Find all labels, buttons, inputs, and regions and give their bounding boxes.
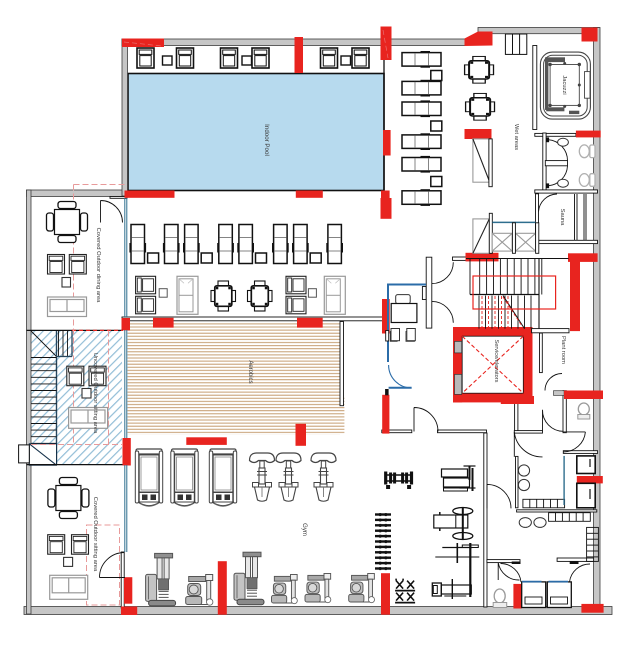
svg-text:Gym: Gym bbox=[301, 523, 307, 536]
svg-text:Sauna: Sauna bbox=[559, 209, 565, 227]
svg-text:Plant room: Plant room bbox=[560, 336, 566, 364]
svg-text:Covered Outdoor dining area: Covered Outdoor dining area bbox=[95, 228, 101, 304]
svg-text:Uncovered Outdoor sitting area: Uncovered Outdoor sitting area bbox=[92, 353, 98, 434]
svg-text:Indoor Pool: Indoor Pool bbox=[263, 124, 270, 156]
svg-text:Jacuzzi: Jacuzzi bbox=[561, 75, 567, 94]
svg-text:Covered Outdoor sitting area: Covered Outdoor sitting area bbox=[92, 497, 98, 572]
svg-text:Aerobics: Aerobics bbox=[247, 360, 253, 383]
svg-text:Service/elevators: Service/elevators bbox=[493, 340, 499, 383]
svg-text:Wet areas: Wet areas bbox=[513, 124, 519, 150]
